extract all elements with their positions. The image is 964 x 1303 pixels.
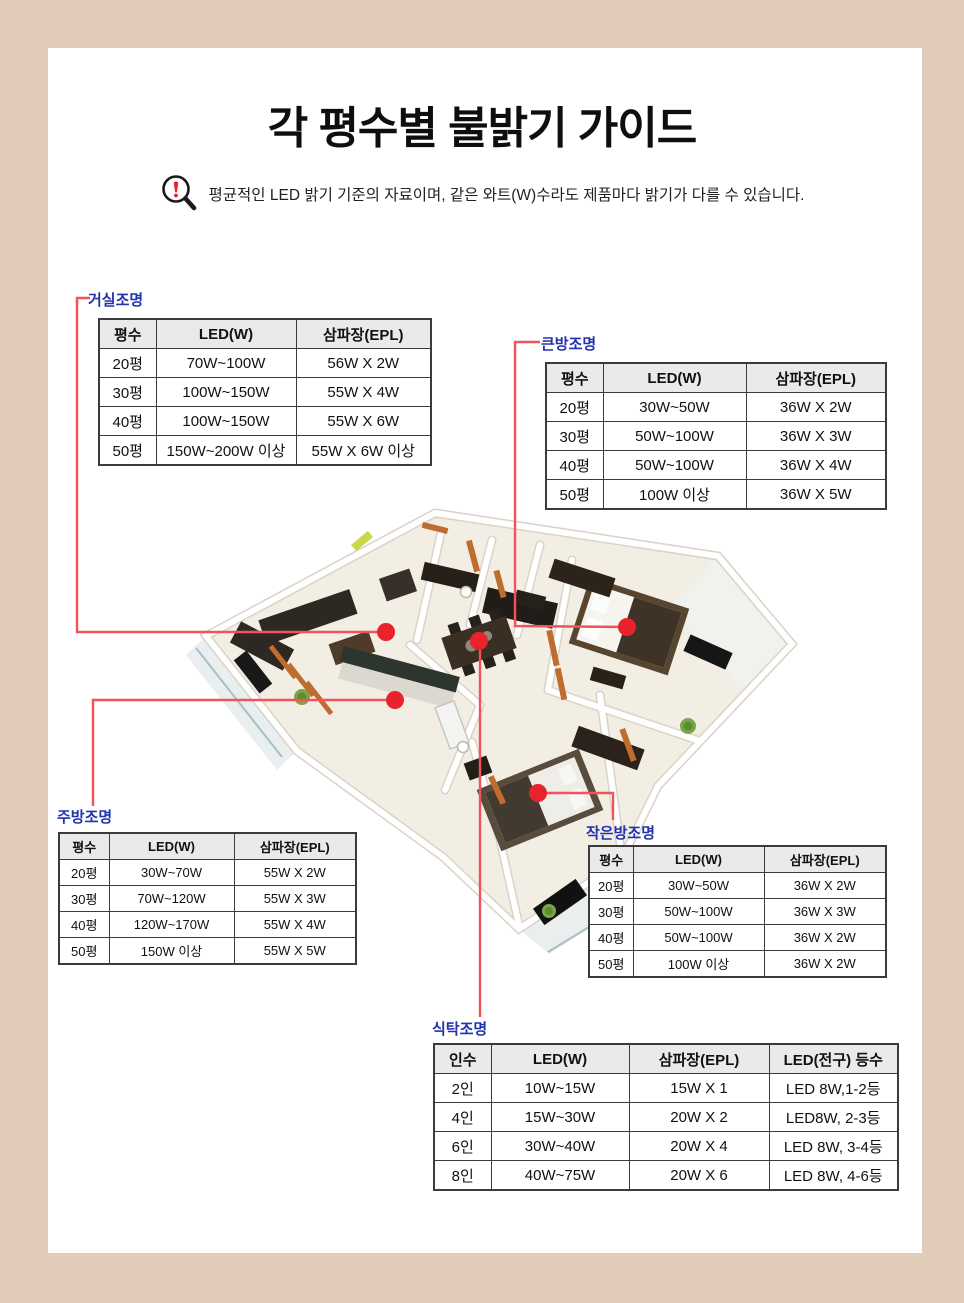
table-cell: 20평 — [546, 393, 603, 422]
table-cell: 4인 — [434, 1103, 491, 1132]
infographic-page: 각 평수별 불밝기 가이드 평균적인 LED 밝기 기준의 자료이며, 같은 와… — [0, 0, 964, 1303]
table-cell: 55W X 5W — [234, 938, 356, 965]
table-cell: 20평 — [589, 873, 633, 899]
table-cell: 20W X 6 — [629, 1161, 769, 1191]
table-cell: 40평 — [589, 925, 633, 951]
column-header: 삼파장(EPL) — [764, 846, 886, 873]
column-header: LED(W) — [109, 833, 234, 860]
column-header: 삼파장(EPL) — [234, 833, 356, 860]
table-cell: 30평 — [546, 422, 603, 451]
table-cell: 100W 이상 — [603, 480, 746, 510]
column-header: 평수 — [546, 363, 603, 393]
table-cell: 30평 — [589, 899, 633, 925]
table-cell: 30W~50W — [633, 873, 764, 899]
table-cell: 30평 — [99, 378, 156, 407]
table-row: 6인30W~40W20W X 4LED 8W, 3-4등 — [434, 1132, 898, 1161]
table-cell: 40평 — [59, 912, 109, 938]
table-cell: 10W~15W — [491, 1074, 629, 1103]
table-cell: 40평 — [99, 407, 156, 436]
table-cell: 50평 — [546, 480, 603, 510]
column-header: 인수 — [434, 1044, 491, 1074]
table-cell: 36W X 2W — [746, 393, 886, 422]
label-living: 거실조명 — [88, 289, 143, 310]
table-cell: 30W~50W — [603, 393, 746, 422]
table-row: 50평150W~200W 이상55W X 6W 이상 — [99, 436, 431, 466]
table-cell: 15W~30W — [491, 1103, 629, 1132]
column-header: LED(W) — [633, 846, 764, 873]
table-cell: 2인 — [434, 1074, 491, 1103]
table-kitchen: 평수LED(W)삼파장(EPL)20평30W~70W55W X 2W30평70W… — [58, 832, 357, 965]
table-row: 30평50W~100W36W X 3W — [589, 899, 886, 925]
table-cell: 50W~100W — [603, 451, 746, 480]
table-cell: 20평 — [99, 349, 156, 378]
table-cell: 55W X 2W — [234, 860, 356, 886]
table-cell: 40평 — [546, 451, 603, 480]
table-cell: 120W~170W — [109, 912, 234, 938]
column-header: LED(전구) 등수 — [769, 1044, 898, 1074]
table-cell: 70W~120W — [109, 886, 234, 912]
table-cell: 50W~100W — [603, 422, 746, 451]
table-cell: 56W X 2W — [296, 349, 431, 378]
notice-text: 평균적인 LED 밝기 기준의 자료이며, 같은 와트(W)수라도 제품마다 밝… — [209, 183, 805, 205]
table-living-room: 평수LED(W)삼파장(EPL)20평70W~100W56W X 2W30평10… — [98, 318, 432, 466]
table-cell: 36W X 5W — [746, 480, 886, 510]
column-header: LED(W) — [491, 1044, 629, 1074]
table-cell: 100W~150W — [156, 407, 296, 436]
table-cell: LED 8W,1-2등 — [769, 1074, 898, 1103]
table-cell: 100W~150W — [156, 378, 296, 407]
table-cell: LED8W, 2-3등 — [769, 1103, 898, 1132]
table-cell: 55W X 6W — [296, 407, 431, 436]
label-big-room: 큰방조명 — [541, 333, 596, 354]
table-cell: 50평 — [59, 938, 109, 965]
table-row: 40평50W~100W36W X 2W — [589, 925, 886, 951]
table-cell: 6인 — [434, 1132, 491, 1161]
table-cell: LED 8W, 4-6등 — [769, 1161, 898, 1191]
column-header: 평수 — [59, 833, 109, 860]
table-row: 20평30W~50W36W X 2W — [546, 393, 886, 422]
table-cell: 50W~100W — [633, 899, 764, 925]
label-small-room: 작은방조명 — [586, 822, 655, 843]
table-cell: 36W X 4W — [746, 451, 886, 480]
column-header: LED(W) — [603, 363, 746, 393]
table-row: 20평70W~100W56W X 2W — [99, 349, 431, 378]
table-cell: 30평 — [59, 886, 109, 912]
table-cell: 50평 — [589, 951, 633, 978]
table-cell: 36W X 3W — [764, 899, 886, 925]
table-row: 4인15W~30W20W X 2LED8W, 2-3등 — [434, 1103, 898, 1132]
table-cell: 30W~40W — [491, 1132, 629, 1161]
table-cell: 8인 — [434, 1161, 491, 1191]
table-cell: 150W 이상 — [109, 938, 234, 965]
table-row: 50평100W 이상36W X 5W — [546, 480, 886, 510]
table-cell: 50평 — [99, 436, 156, 466]
table-cell: 20W X 2 — [629, 1103, 769, 1132]
table-cell: 150W~200W 이상 — [156, 436, 296, 466]
column-header: LED(W) — [156, 319, 296, 349]
label-kitchen: 주방조명 — [57, 806, 112, 827]
column-header: 삼파장(EPL) — [746, 363, 886, 393]
table-cell: 40W~75W — [491, 1161, 629, 1191]
table-cell: 55W X 6W 이상 — [296, 436, 431, 466]
label-dining: 식탁조명 — [432, 1018, 487, 1039]
table-row: 20평30W~50W36W X 2W — [589, 873, 886, 899]
table-cell: 55W X 4W — [234, 912, 356, 938]
table-row: 50평100W 이상36W X 2W — [589, 951, 886, 978]
table-cell: 15W X 1 — [629, 1074, 769, 1103]
table-cell: 55W X 4W — [296, 378, 431, 407]
table-cell: 36W X 2W — [764, 873, 886, 899]
table-row: 8인40W~75W20W X 6LED 8W, 4-6등 — [434, 1161, 898, 1191]
table-cell: 36W X 2W — [764, 925, 886, 951]
column-header: 삼파장(EPL) — [296, 319, 431, 349]
table-big-room: 평수LED(W)삼파장(EPL)20평30W~50W36W X 2W30평50W… — [545, 362, 887, 510]
table-row: 40평100W~150W55W X 6W — [99, 407, 431, 436]
table-row: 30평100W~150W55W X 4W — [99, 378, 431, 407]
table-cell: 100W 이상 — [633, 951, 764, 978]
column-header: 평수 — [99, 319, 156, 349]
table-cell: 36W X 3W — [746, 422, 886, 451]
table-row: 50평150W 이상55W X 5W — [59, 938, 356, 965]
table-cell: LED 8W, 3-4등 — [769, 1132, 898, 1161]
table-row: 30평70W~120W55W X 3W — [59, 886, 356, 912]
page-title: 각 평수별 불밝기 가이드 — [0, 92, 964, 156]
table-row: 30평50W~100W36W X 3W — [546, 422, 886, 451]
notice-row: 평균적인 LED 밝기 기준의 자료이며, 같은 와트(W)수라도 제품마다 밝… — [0, 172, 964, 216]
table-cell: 30W~70W — [109, 860, 234, 886]
table-cell: 20W X 4 — [629, 1132, 769, 1161]
table-cell: 50W~100W — [633, 925, 764, 951]
table-row: 2인10W~15W15W X 1LED 8W,1-2등 — [434, 1074, 898, 1103]
table-cell: 36W X 2W — [764, 951, 886, 978]
table-row: 40평120W~170W55W X 4W — [59, 912, 356, 938]
table-dining: 인수LED(W)삼파장(EPL)LED(전구) 등수2인10W~15W15W X… — [433, 1043, 899, 1191]
table-row: 20평30W~70W55W X 2W — [59, 860, 356, 886]
table-cell: 70W~100W — [156, 349, 296, 378]
table-cell: 55W X 3W — [234, 886, 356, 912]
column-header: 평수 — [589, 846, 633, 873]
magnifier-exclamation-icon — [160, 172, 200, 216]
table-cell: 20평 — [59, 860, 109, 886]
table-small-room: 평수LED(W)삼파장(EPL)20평30W~50W36W X 2W30평50W… — [588, 845, 887, 978]
table-row: 40평50W~100W36W X 4W — [546, 451, 886, 480]
column-header: 삼파장(EPL) — [629, 1044, 769, 1074]
